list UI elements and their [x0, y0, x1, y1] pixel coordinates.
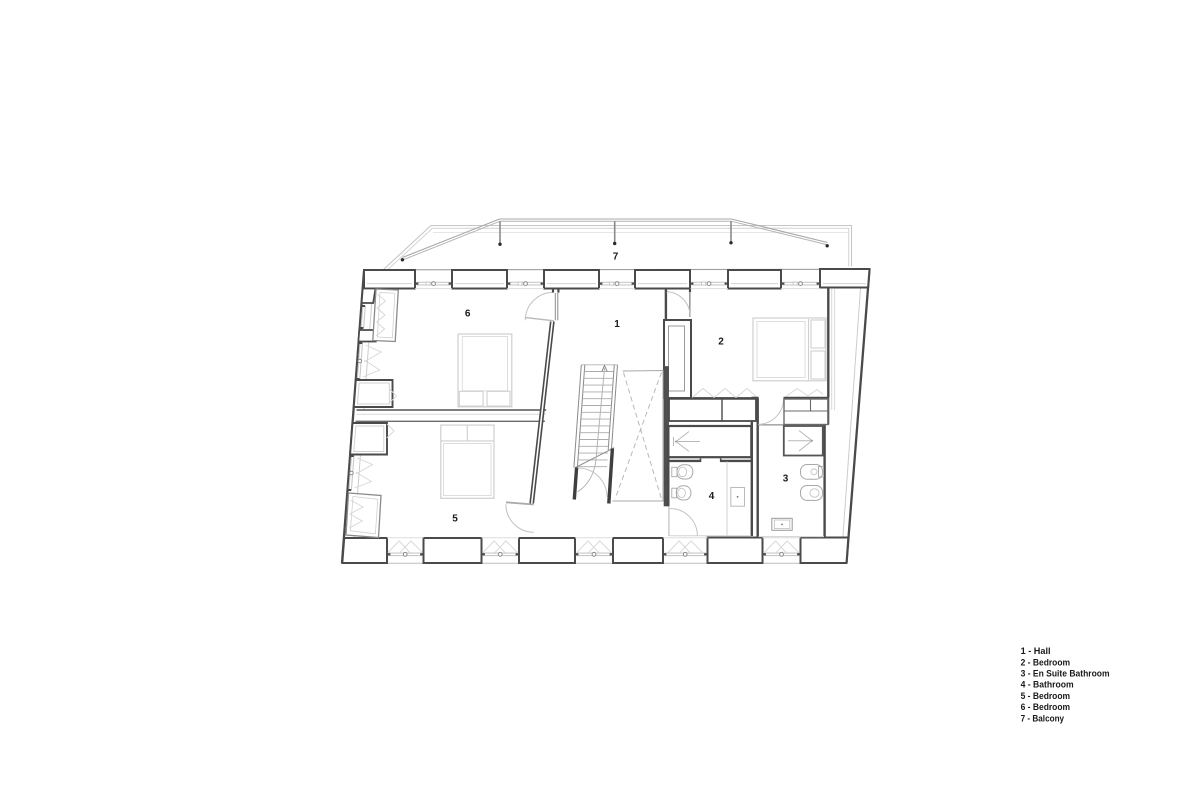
svg-text:5 - Bedroom: 5 - Bedroom	[1021, 691, 1071, 701]
svg-text:3 - En Suite Bathroom: 3 - En Suite Bathroom	[1021, 669, 1110, 679]
svg-text:4 - Bathroom: 4 - Bathroom	[1021, 680, 1074, 690]
svg-text:1 - Hall: 1 - Hall	[1021, 646, 1051, 656]
svg-text:6 - Bedroom: 6 - Bedroom	[1021, 702, 1071, 712]
svg-text:6: 6	[465, 309, 471, 320]
svg-text:2: 2	[718, 337, 724, 348]
svg-text:7 - Balcony: 7 - Balcony	[1021, 713, 1065, 723]
svg-text:1: 1	[614, 319, 620, 330]
svg-text:5: 5	[452, 514, 458, 525]
svg-text:7: 7	[613, 252, 619, 263]
svg-text:2 - Bedroom: 2 - Bedroom	[1021, 657, 1071, 667]
svg-text:3: 3	[783, 474, 789, 485]
svg-text:4: 4	[709, 491, 715, 502]
